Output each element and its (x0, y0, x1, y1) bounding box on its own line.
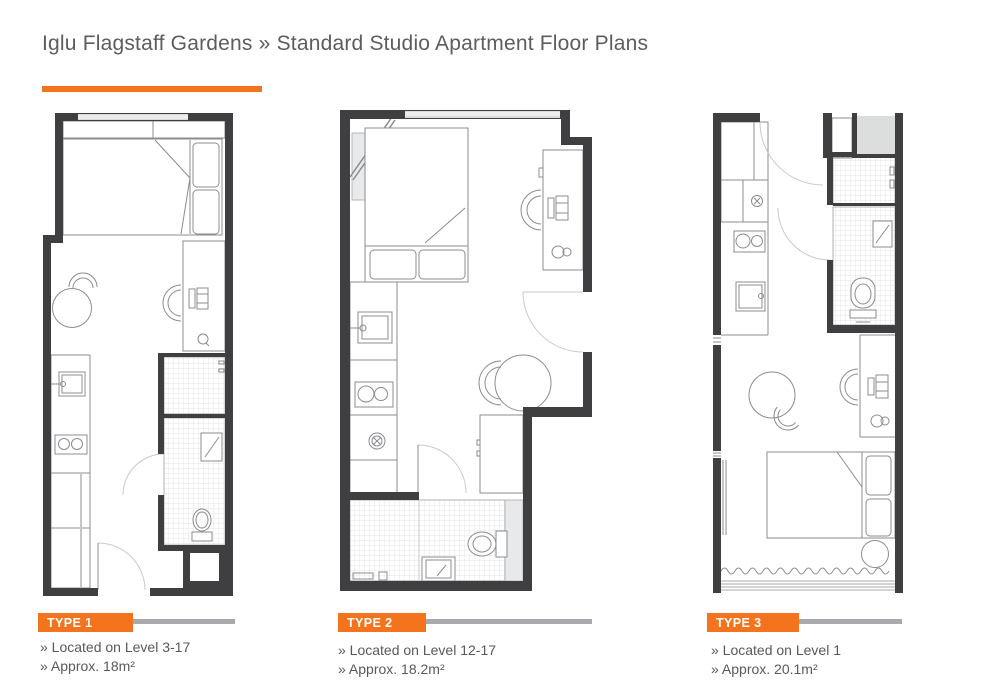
toilet (192, 509, 212, 541)
desk-chair (840, 369, 858, 405)
desk (860, 335, 895, 437)
entry-closet (190, 553, 219, 581)
kitchen-counter (350, 282, 397, 495)
curtain-wave (721, 568, 889, 574)
dining-table (53, 273, 98, 328)
bed (365, 128, 468, 282)
door-arcs (760, 122, 830, 260)
desk (183, 241, 225, 351)
type-1-label: TYPE 1 (38, 613, 133, 632)
title-underline-rule (42, 86, 262, 92)
kitchen-counter (51, 355, 90, 588)
plan-detail: » Located on Level 3-17 (40, 638, 190, 657)
type-3-details: » Located on Level 1 » Approx. 20.1m² (711, 641, 841, 679)
floor-plan-type-3 (710, 110, 903, 593)
dining-table (479, 355, 551, 411)
plan2-furniture (350, 117, 583, 581)
bed (767, 452, 895, 538)
type-2-label: TYPE 2 (338, 613, 426, 632)
plan-detail: » Approx. 18.2m² (338, 660, 496, 679)
type-3-caption-line (799, 619, 902, 624)
page-title: Iglu Flagstaff Gardens » Standard Studio… (42, 32, 648, 56)
kitchen-counter (721, 122, 768, 335)
toilet (850, 278, 876, 322)
window-glazing (78, 114, 188, 120)
wardrobe (477, 415, 523, 493)
plan-detail: » Located on Level 12-17 (338, 641, 496, 660)
bottom-window (721, 581, 895, 590)
type-2-caption-line (426, 619, 592, 624)
bed (63, 139, 222, 235)
plan-detail: » Approx. 20.1m² (711, 660, 841, 679)
desk (539, 150, 583, 270)
floor-plan-type-2 (339, 110, 592, 591)
plan-detail: » Approx. 18m² (40, 657, 190, 676)
window-glazing (405, 111, 560, 118)
type-1-details: » Located on Level 3-17 » Approx. 18m² (40, 638, 190, 676)
desk-chair (163, 285, 181, 321)
stool (862, 541, 889, 568)
plan3-furniture (713, 118, 895, 590)
type-2-details: » Located on Level 12-17 » Approx. 18.2m… (338, 641, 496, 679)
floor-plan-type-1 (43, 113, 233, 596)
dining-table (749, 372, 799, 436)
toilet (468, 531, 507, 557)
plan-detail: » Located on Level 1 (711, 641, 841, 660)
desk-chair (521, 190, 541, 230)
door-arcs (98, 454, 164, 590)
type-3-label: TYPE 3 (707, 613, 799, 632)
type-1-caption-line (133, 619, 235, 624)
service-shaft (857, 116, 895, 154)
